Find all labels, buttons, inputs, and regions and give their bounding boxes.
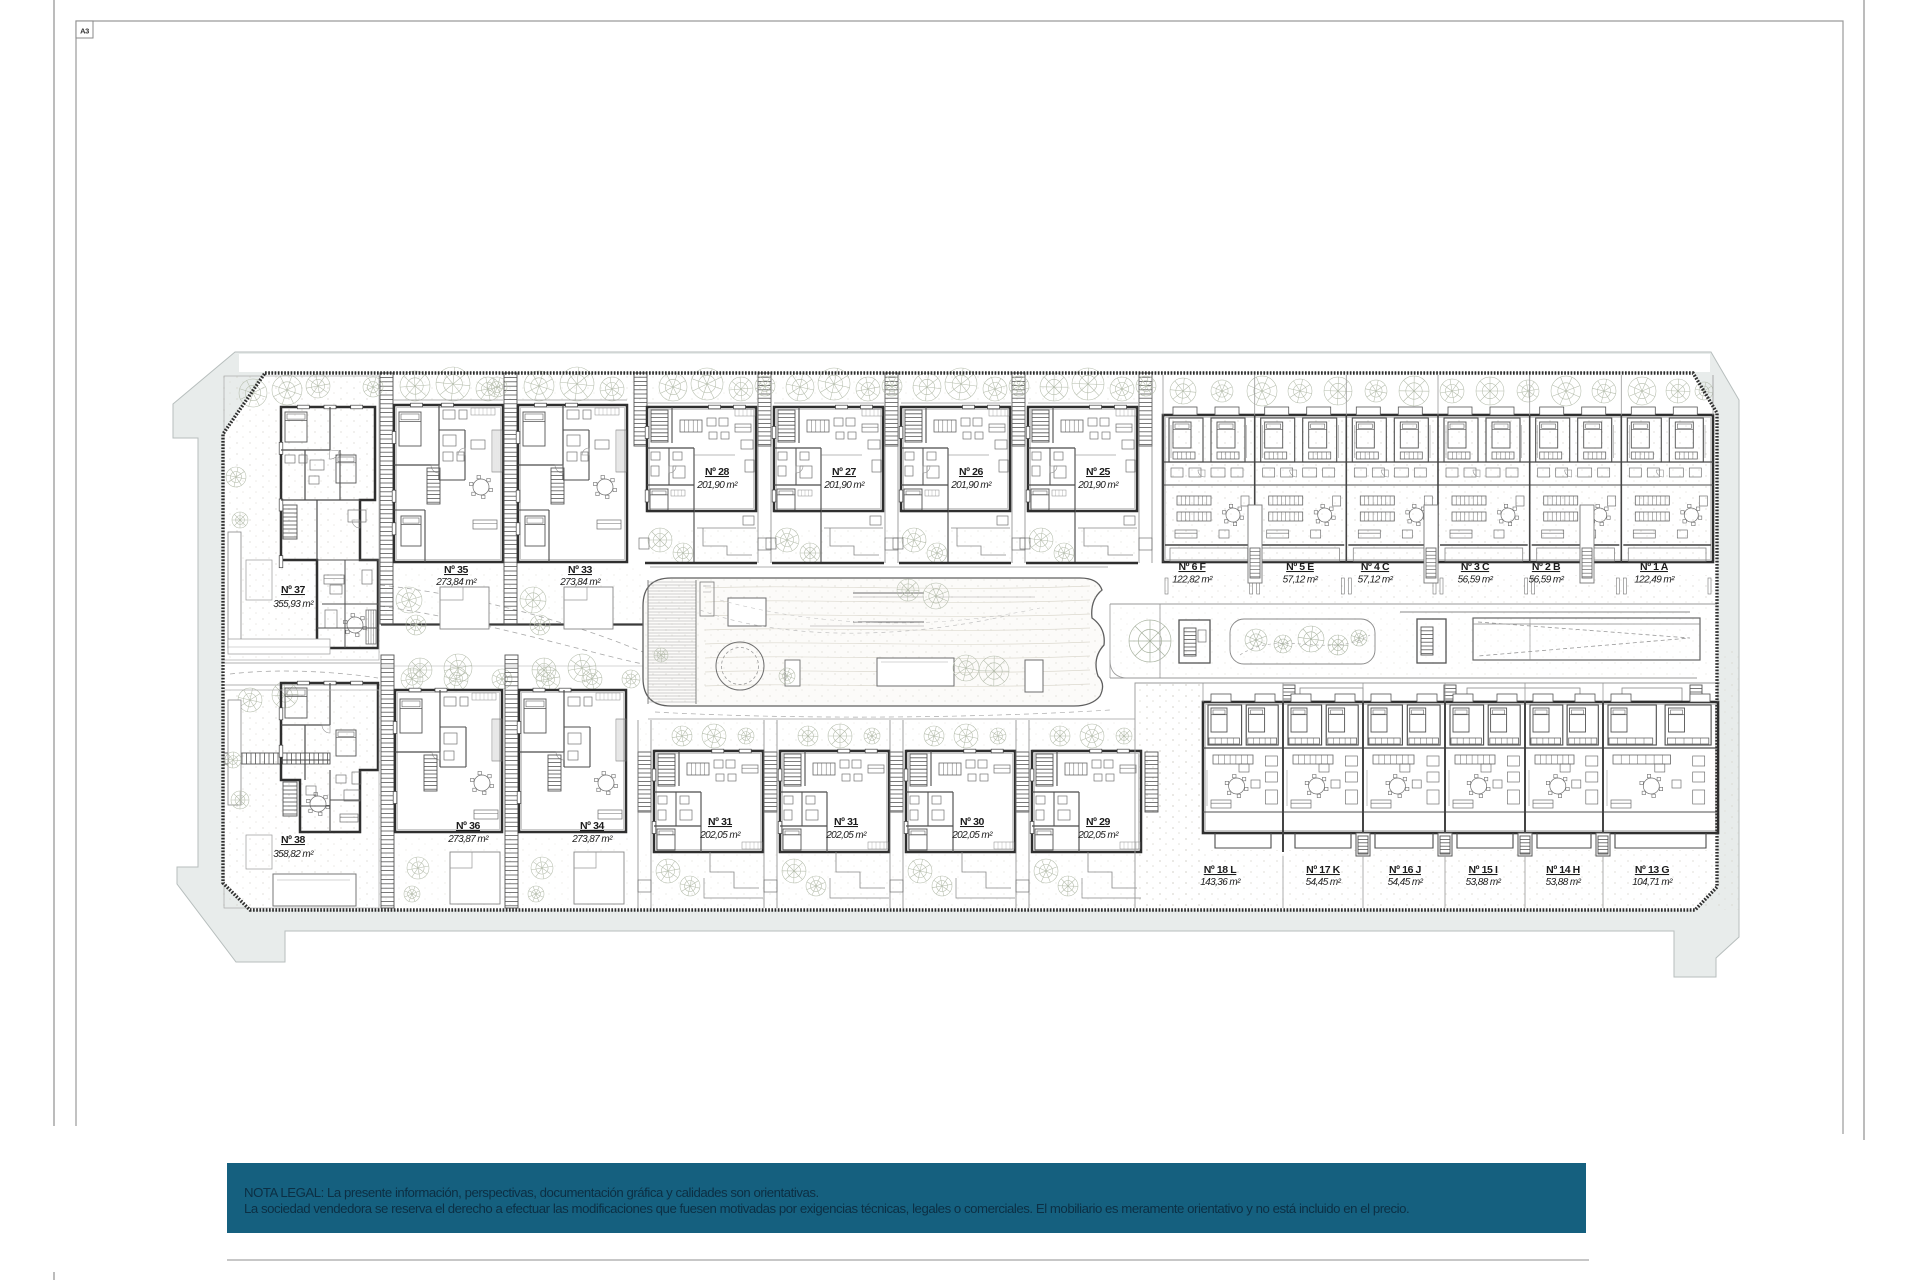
svg-text:NOTA LEGAL: La presente inform: NOTA LEGAL: La presente información, per… — [244, 1185, 819, 1200]
svg-text:355,93 m²: 355,93 m² — [273, 599, 314, 610]
svg-text:Nº 30: Nº 30 — [960, 816, 985, 828]
svg-text:57,12 m²: 57,12 m² — [1358, 575, 1394, 586]
svg-text:Nº 16 J: Nº 16 J — [1389, 864, 1422, 876]
svg-text:Nº 17 K: Nº 17 K — [1306, 864, 1341, 876]
svg-text:143,36 m²: 143,36 m² — [1200, 877, 1241, 888]
svg-text:Nº 31: Nº 31 — [708, 816, 733, 828]
svg-text:Nº 33: Nº 33 — [568, 564, 593, 576]
svg-text:Nº 26: Nº 26 — [959, 466, 984, 478]
svg-text:122,49 m²: 122,49 m² — [1634, 575, 1675, 586]
svg-text:202,05 m²: 202,05 m² — [699, 830, 741, 841]
svg-text:358,82 m²: 358,82 m² — [273, 849, 314, 860]
svg-text:Nº 37: Nº 37 — [281, 584, 306, 596]
svg-text:202,05 m²: 202,05 m² — [951, 830, 993, 841]
svg-text:122,82 m²: 122,82 m² — [1172, 575, 1213, 586]
svg-text:Nº 31: Nº 31 — [834, 816, 859, 828]
svg-text:56,59 m²: 56,59 m² — [1529, 575, 1565, 586]
svg-text:201,90 m²: 201,90 m² — [696, 480, 738, 491]
svg-text:A3: A3 — [80, 27, 89, 36]
svg-text:54,45 m²: 54,45 m² — [1388, 877, 1424, 888]
svg-text:Nº 29: Nº 29 — [1086, 816, 1111, 828]
svg-text:Nº 14 H: Nº 14 H — [1546, 864, 1580, 876]
svg-text:Nº 4 C: Nº 4 C — [1361, 561, 1390, 573]
svg-text:53,88 m²: 53,88 m² — [1546, 877, 1582, 888]
svg-text:201,90 m²: 201,90 m² — [1077, 480, 1119, 491]
svg-text:202,05 m²: 202,05 m² — [825, 830, 867, 841]
svg-text:Nº 25: Nº 25 — [1086, 466, 1111, 478]
svg-text:273,87 m²: 273,87 m² — [447, 834, 489, 845]
svg-text:202,05 m²: 202,05 m² — [1077, 830, 1119, 841]
svg-text:Nº 38: Nº 38 — [281, 834, 306, 846]
svg-text:53,88 m²: 53,88 m² — [1466, 877, 1502, 888]
svg-text:Nº 34: Nº 34 — [580, 820, 605, 832]
svg-text:Nº 27: Nº 27 — [832, 466, 857, 478]
svg-text:Nº 36: Nº 36 — [456, 820, 481, 832]
svg-text:57,12 m²: 57,12 m² — [1283, 575, 1319, 586]
svg-text:201,90 m²: 201,90 m² — [823, 480, 865, 491]
svg-text:Nº 13 G: Nº 13 G — [1635, 864, 1670, 876]
svg-text:104,71 m²: 104,71 m² — [1632, 877, 1673, 888]
svg-text:Nº 18 L: Nº 18 L — [1204, 864, 1238, 876]
svg-text:273,84 m²: 273,84 m² — [559, 577, 601, 588]
svg-text:201,90 m²: 201,90 m² — [950, 480, 992, 491]
svg-text:La sociedad vendedora se reser: La sociedad vendedora se reserva el dere… — [244, 1201, 1409, 1216]
svg-text:Nº 3 C: Nº 3 C — [1461, 561, 1490, 573]
svg-text:Nº 15 I: Nº 15 I — [1468, 864, 1498, 876]
svg-text:273,84 m²: 273,84 m² — [435, 577, 477, 588]
svg-text:Nº 2 B: Nº 2 B — [1532, 561, 1561, 573]
svg-text:Nº 28: Nº 28 — [705, 466, 730, 478]
svg-text:56,59 m²: 56,59 m² — [1458, 575, 1494, 586]
svg-text:Nº 5 E: Nº 5 E — [1286, 561, 1314, 573]
svg-text:Nº 35: Nº 35 — [444, 564, 469, 576]
svg-text:54,45 m²: 54,45 m² — [1306, 877, 1342, 888]
svg-text:Nº 1 A: Nº 1 A — [1640, 561, 1669, 573]
svg-text:273,87 m²: 273,87 m² — [571, 834, 613, 845]
svg-text:Nº 6 F: Nº 6 F — [1178, 561, 1206, 573]
